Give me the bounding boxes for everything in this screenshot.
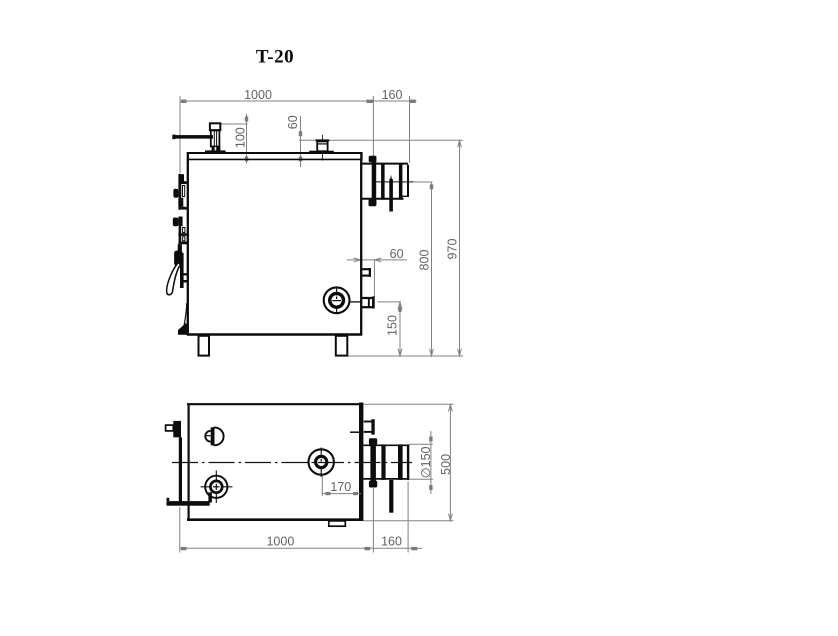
svg-text:∅150: ∅150: [419, 446, 433, 478]
svg-text:60: 60: [286, 115, 300, 129]
svg-text:T-20: T-20: [256, 47, 294, 68]
svg-text:970: 970: [445, 239, 459, 260]
svg-text:100: 100: [234, 127, 248, 148]
svg-text:500: 500: [439, 454, 453, 475]
svg-text:1000: 1000: [244, 88, 272, 102]
svg-text:160: 160: [382, 88, 403, 102]
svg-text:1000: 1000: [266, 535, 294, 549]
svg-text:150: 150: [385, 315, 399, 336]
svg-text:800: 800: [417, 250, 431, 271]
svg-text:170: 170: [330, 480, 351, 494]
svg-text:160: 160: [381, 535, 402, 549]
svg-text:60: 60: [390, 247, 404, 261]
